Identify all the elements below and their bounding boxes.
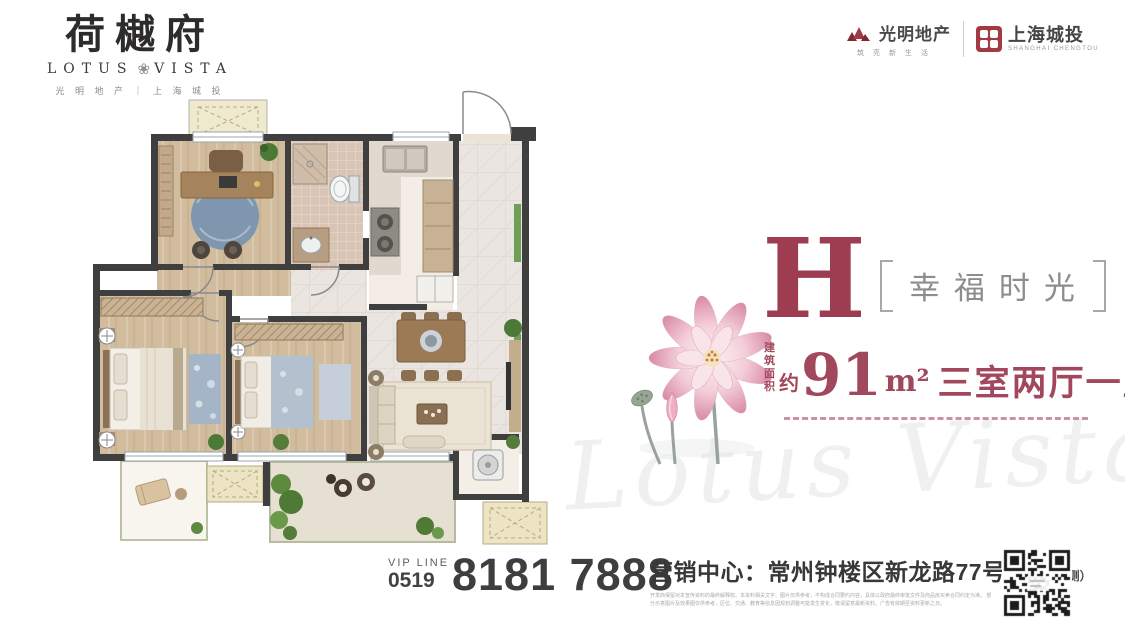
brand-name-cn: 荷樾府 xyxy=(30,14,250,56)
plant xyxy=(504,319,522,337)
phone-number: 8181 7888 xyxy=(452,549,674,601)
ac-platform-mid xyxy=(207,466,263,502)
balcony-plant xyxy=(416,517,434,535)
partner2-name: 上海城投 xyxy=(1008,26,1099,44)
wardrobe xyxy=(101,298,203,316)
vip-area-code: 0519 xyxy=(388,570,449,592)
partner1-name: 光明地产 xyxy=(879,20,951,45)
lotus-illustration xyxy=(612,296,777,468)
balcony-plant xyxy=(432,527,444,539)
poster-page: 荷樾府 LOTUS ❀ VISTA 光 明 地 产 ｜ 上 海 城 投 光明地产… xyxy=(0,0,1125,633)
vip-block: VIP LINE 0519 xyxy=(388,558,449,592)
area-approx: 约 xyxy=(779,367,799,396)
area-unit: m² xyxy=(885,364,930,399)
unit-info: H 幸福时光 建筑 面积 约 91 m² 三室两厅一卫 xyxy=(762,236,1112,420)
area-value: 91 xyxy=(801,351,882,400)
bracket-left xyxy=(880,260,893,312)
chengtou-square-icon xyxy=(976,26,1002,52)
partner2-sub: SHANGHAI CHENGTOU xyxy=(1008,46,1099,52)
floral-rug xyxy=(189,354,221,424)
address-block: 营销中心：常州钟楼区新龙路77号 （荷园正南侧） 开发商保留对本宣传资料的最终解… xyxy=(650,553,1000,608)
guangming-mountain-icon xyxy=(843,23,873,43)
plant xyxy=(191,522,203,534)
unit-tagline-wrap: 幸福时光 xyxy=(880,260,1106,312)
partner-guangming: 光明地产 筑亮新生活 xyxy=(843,20,951,58)
bench xyxy=(403,436,445,448)
vip-label: VIP LINE xyxy=(388,558,449,570)
partner-divider xyxy=(963,21,964,57)
bracket-right xyxy=(1093,260,1106,312)
unit-letter: H xyxy=(762,236,866,322)
floorplan-drawing xyxy=(85,88,575,558)
brand-en-right: VISTA xyxy=(154,61,233,77)
bedroom2-balcony-window xyxy=(238,452,346,461)
small-table xyxy=(175,488,187,500)
entry-threshold xyxy=(463,134,511,142)
sofa xyxy=(378,386,395,444)
area-label-top: 建筑 xyxy=(764,342,776,368)
sales-center-address: 营销中心：常州钟楼区新龙路77号 xyxy=(650,553,1006,587)
master-balcony-window xyxy=(125,452,223,461)
plant xyxy=(506,435,520,449)
disclaimer-line1: 开发商保留对本宣传资料的最终解释权。本资料相关文字、图片仅供参考，不构成合同要约… xyxy=(650,593,985,599)
unit-area-row: 建筑 面积 约 91 m² 三室两厅一卫 xyxy=(762,342,1112,401)
dashed-divider xyxy=(784,417,1088,420)
ac-platform-right xyxy=(483,502,547,544)
unit-layout: 三室两厅一卫 xyxy=(938,367,1125,400)
partner-chengtou: 上海城投 SHANGHAI CHENGTOU xyxy=(976,26,1099,52)
brand-block: 荷樾府 LOTUS ❀ VISTA 光 明 地 产 ｜ 上 海 城 投 xyxy=(30,14,250,97)
balcony-plant xyxy=(283,526,297,540)
headboard xyxy=(103,350,110,428)
bud-stem xyxy=(672,418,675,464)
tv xyxy=(506,362,511,410)
brand-name-en: LOTUS ❀ VISTA xyxy=(30,60,250,78)
wardrobe xyxy=(235,324,343,340)
partner1-tagline: 筑亮新生活 xyxy=(857,48,937,58)
monitor xyxy=(219,176,237,188)
balcony-plant xyxy=(270,511,288,529)
plant xyxy=(208,434,224,450)
sofa-back xyxy=(369,386,378,444)
seed-pod xyxy=(629,387,655,409)
shower xyxy=(293,144,327,184)
kitchen-window xyxy=(393,132,449,142)
entry-door-arc xyxy=(463,92,511,134)
toilet xyxy=(330,176,350,202)
study-top-window xyxy=(193,132,263,142)
headboard xyxy=(235,360,241,424)
rug xyxy=(319,364,351,420)
qr-code xyxy=(1002,548,1072,618)
brand-en-left: LOTUS xyxy=(47,61,134,77)
lotus-ornament-icon: ❀ xyxy=(138,60,151,78)
small-stool xyxy=(326,474,336,484)
corridor-tile xyxy=(291,270,367,322)
shoe-cabinet xyxy=(514,204,521,262)
plant xyxy=(273,434,289,450)
unit-tagline: 幸福时光 xyxy=(893,263,1093,308)
pod-stem xyxy=(642,406,660,464)
area-label-bottom: 面积 xyxy=(764,368,776,394)
partner-logos: 光明地产 筑亮新生活 上海城投 SHANGHAI CHENGTOU xyxy=(843,20,1099,58)
desk-chair xyxy=(209,150,243,172)
balcony-plant xyxy=(279,490,303,514)
